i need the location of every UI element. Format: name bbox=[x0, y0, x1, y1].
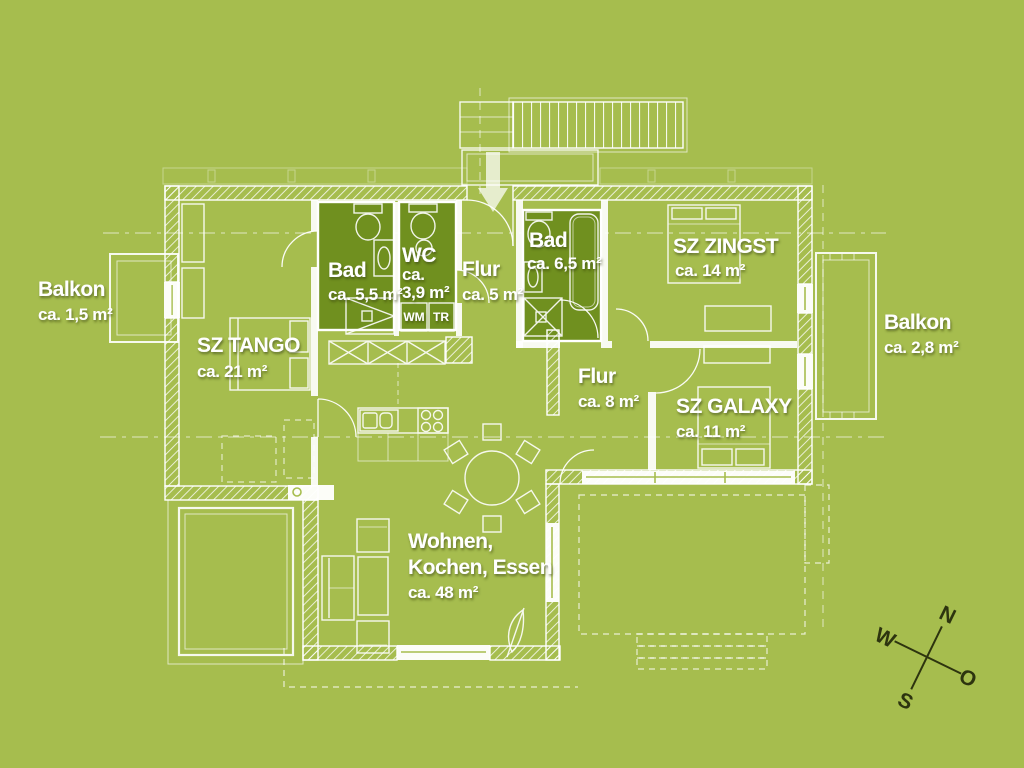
label-bad-65-area: ca. 6,5 m² bbox=[527, 254, 602, 273]
label-wohnen-area: ca. 48 m² bbox=[408, 583, 479, 602]
floor-plan-canvas: Balkon ca. 1,5 m² SZ TANGO ca. 21 m² Bad… bbox=[0, 0, 1024, 768]
label-balkon-left-area: ca. 1,5 m² bbox=[38, 305, 113, 324]
label-sz-galaxy-name: SZ GALAXY bbox=[676, 395, 792, 418]
label-bad-65-name: Bad bbox=[529, 229, 567, 252]
label-balkon-right-name: Balkon bbox=[884, 311, 951, 334]
label-flur-8-area: ca. 8 m² bbox=[578, 392, 640, 411]
label-wohnen-name-2: Kochen, Essen bbox=[408, 556, 552, 579]
label-balkon-right-area: ca. 2,8 m² bbox=[884, 338, 959, 357]
label-bad-55-area: ca. 5,5 m² bbox=[328, 285, 403, 304]
label-sz-zingst-area: ca. 14 m² bbox=[675, 261, 746, 280]
label-flur-5-name: Flur bbox=[462, 258, 500, 281]
label-wc-name: WC bbox=[402, 244, 436, 267]
label-sz-zingst-name: SZ ZINGST bbox=[673, 235, 779, 258]
label-wohnen-name-1: Wohnen, bbox=[408, 530, 493, 553]
terrace-door bbox=[288, 485, 334, 500]
label-sz-tango-area: ca. 21 m² bbox=[197, 362, 268, 381]
label-bad-55-name: Bad bbox=[328, 259, 366, 282]
label-washing-machine: WM bbox=[403, 310, 424, 324]
label-dryer: TR bbox=[433, 310, 449, 324]
floor-plan-page: Balkon ca. 1,5 m² SZ TANGO ca. 21 m² Bad… bbox=[0, 0, 1024, 768]
label-balkon-left-name: Balkon bbox=[38, 278, 105, 301]
label-sz-galaxy-area: ca. 11 m² bbox=[676, 422, 746, 441]
label-flur-5-area: ca. 5 m² bbox=[462, 285, 524, 304]
label-flur-8-name: Flur bbox=[578, 365, 616, 388]
label-sz-tango-name: SZ TANGO bbox=[197, 334, 300, 357]
label-wc-area-1: ca. bbox=[402, 265, 425, 284]
label-wc-area-2: 3,9 m² bbox=[402, 283, 450, 302]
